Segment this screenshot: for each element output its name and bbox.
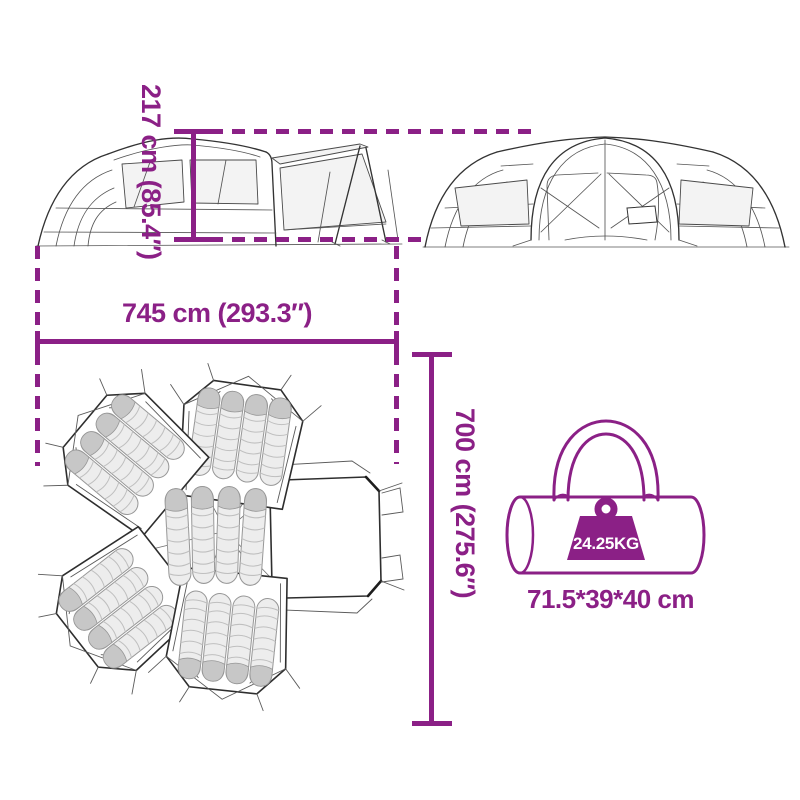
width-extension-line-left-upper: [35, 246, 40, 331]
depth-dimension-line: [429, 354, 434, 724]
height-dimension-label: 217 cm (85.4″): [137, 84, 164, 260]
door-window: [627, 206, 657, 224]
bag-size-label: 71.5*39*40 cm: [498, 586, 723, 612]
tent-window-panel: [679, 180, 753, 226]
bag-end-cap: [507, 497, 533, 573]
tent-front-view: [415, 128, 795, 256]
width-dimension-label: 745 cm (293.3″): [38, 300, 396, 327]
living-room: [270, 461, 404, 613]
carry-bag-illustration: 24.25KG: [498, 408, 723, 583]
height-extension-line-top: [210, 129, 535, 134]
width-extension-line-right-upper: [394, 246, 399, 331]
bag-handle: [554, 421, 658, 500]
width-dimension-line: [38, 339, 396, 344]
ground-line: [36, 244, 402, 246]
weight-icon: 24.25KG: [567, 501, 645, 560]
height-dimension-line: [191, 131, 196, 241]
tent-dimension-diagram: 217 cm (85.4″) 745 cm (293.3″) 700 cm (2…: [0, 0, 800, 800]
depth-dimension-cap-bottom: [412, 721, 452, 726]
depth-dimension-cap-top: [412, 352, 452, 357]
bag-weight-label: 24.25KG: [573, 534, 639, 553]
depth-dimension-label: 700 cm (275.6″): [451, 408, 478, 598]
tent-floorplan: [30, 345, 415, 745]
height-dimension-cap-bottom: [174, 237, 212, 242]
tent-window-panel: [190, 160, 258, 204]
height-dimension-cap-top: [174, 129, 212, 134]
tent-window-panel: [455, 180, 529, 226]
height-extension-line-bottom: [210, 237, 424, 242]
